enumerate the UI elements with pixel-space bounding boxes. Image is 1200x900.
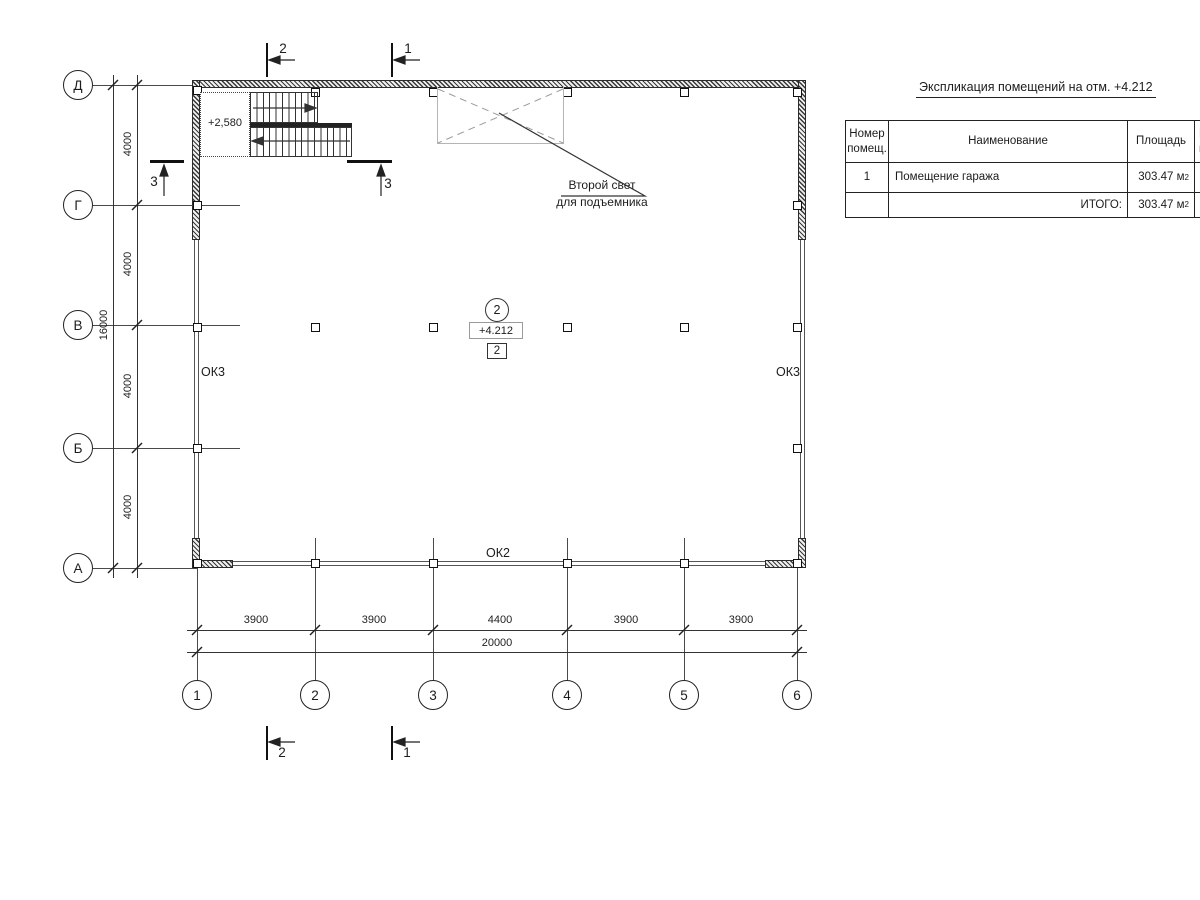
area-value: 303.47 м: [1138, 170, 1184, 184]
schedule-total-area: 303.47 м2: [1128, 193, 1195, 217]
schedule-total-label: ИТОГО:: [889, 193, 1128, 217]
header-line: Площадь: [1136, 134, 1186, 148]
header-line: помещ.: [847, 142, 887, 156]
schedule-header-area: Площадь: [1128, 121, 1195, 163]
area-value: 303.47 м: [1138, 198, 1184, 212]
schedule-header-number: Номер помещ.: [846, 121, 889, 163]
section-arrows: [160, 56, 420, 746]
schedule-total-category: [1195, 193, 1200, 217]
header-line: Номер: [849, 127, 884, 141]
floor-plan-drawing: 4000 4000 4000 4000 16000 3900 3900 4400…: [0, 0, 1200, 900]
schedule-table: Номер помещ. Наименование Площадь К п 1 …: [845, 120, 1200, 218]
opening-cross-icon: [438, 89, 563, 143]
header-line: Наименование: [968, 134, 1048, 148]
schedule-title: Экспликация помещений на отм. +4.212: [916, 80, 1156, 98]
dimension-ticks: [108, 80, 802, 657]
schedule-row-area: 303.47 м2: [1128, 163, 1195, 193]
schedule-row-category: [1195, 163, 1200, 193]
schedule-total-blank: [846, 193, 889, 217]
schedule-row-name: Помещение гаража: [889, 163, 1128, 193]
schedule-header-category: К п: [1195, 121, 1200, 163]
schedule-row-number: 1: [846, 163, 889, 193]
stair-arrows: [252, 104, 350, 145]
schedule-header-name: Наименование: [889, 121, 1128, 163]
callout-leader-line: [499, 113, 645, 196]
